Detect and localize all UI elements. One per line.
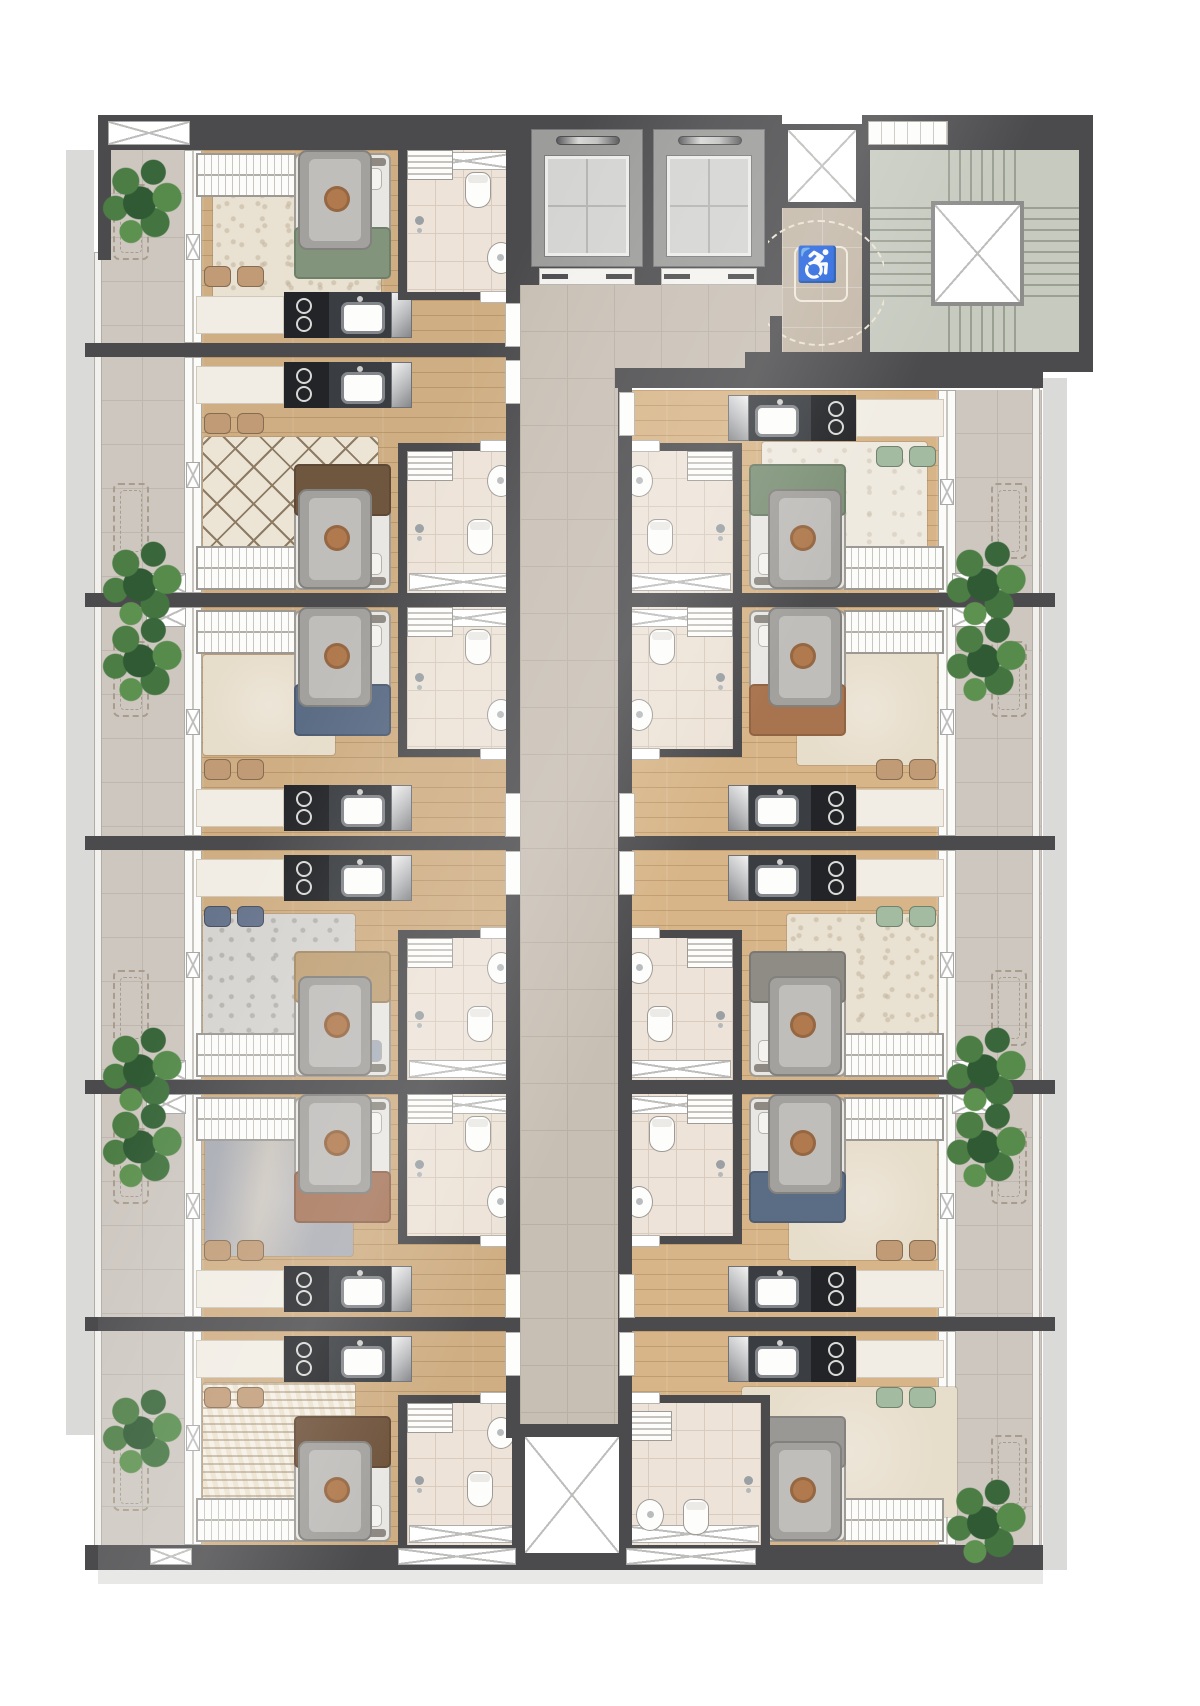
refrigerator-icon xyxy=(391,1266,412,1312)
shower-head-icon xyxy=(415,1011,424,1020)
refrigerator-icon xyxy=(728,1266,749,1312)
dining-chair xyxy=(204,1387,231,1408)
accessible-shower-bench xyxy=(687,938,733,968)
window-transom xyxy=(940,952,954,978)
toilet-icon xyxy=(649,1116,675,1152)
shadow-bottom xyxy=(98,1570,1043,1584)
floor-plan-canvas: ♿ xyxy=(0,0,1200,1706)
armchair xyxy=(298,150,372,250)
armchair xyxy=(768,607,842,707)
kitchen-sink-icon xyxy=(749,785,811,831)
cooktop-icon xyxy=(284,855,329,901)
elevator-1 xyxy=(531,129,643,267)
wardrobe xyxy=(196,1033,296,1077)
shower-head-icon xyxy=(415,216,424,225)
toilet-icon xyxy=(649,629,675,665)
dining-counter xyxy=(196,296,284,334)
dining-chair xyxy=(909,1240,936,1261)
dining-counter xyxy=(856,1340,944,1378)
window-transom xyxy=(940,709,954,735)
armchair xyxy=(298,976,372,1076)
armchair xyxy=(298,489,372,589)
kitchenette xyxy=(196,853,412,903)
dining-chair xyxy=(909,1387,936,1408)
cooktop-icon xyxy=(284,362,329,408)
refrigerator-icon xyxy=(391,1336,412,1382)
dining-counter xyxy=(856,399,944,437)
dining-chair xyxy=(204,759,231,780)
accessible-shower-bench xyxy=(687,1094,733,1124)
dining-chair xyxy=(876,759,903,780)
dining-chair xyxy=(237,759,264,780)
unit-entry-door xyxy=(505,360,521,404)
toilet-icon xyxy=(647,1006,673,1042)
window-transom xyxy=(186,709,200,735)
toilet-icon xyxy=(467,1006,493,1042)
dining-chair xyxy=(909,906,936,927)
accessible-shower-bench xyxy=(407,451,453,481)
shower-head-icon xyxy=(415,524,424,533)
dining-chair xyxy=(204,1240,231,1261)
window-transom xyxy=(186,952,200,978)
shower-glass xyxy=(409,1060,518,1078)
dining-chair xyxy=(237,413,264,434)
bathroom-door xyxy=(630,927,660,939)
potted-plant xyxy=(100,1386,186,1476)
kitchenette xyxy=(728,1334,944,1384)
wardrobe xyxy=(844,546,944,590)
shower-head-icon xyxy=(415,673,424,682)
armchair xyxy=(768,976,842,1076)
bathroom xyxy=(398,607,520,757)
balcony-rail-right xyxy=(1032,388,1040,1548)
bathroom xyxy=(398,1395,520,1545)
kitchenette xyxy=(196,1264,412,1314)
elevator-cab-icon xyxy=(667,156,751,256)
potted-plant xyxy=(100,156,186,246)
corridor-wall-right xyxy=(618,385,632,1425)
kitchenette xyxy=(728,1264,944,1314)
toilet-icon xyxy=(465,172,491,208)
cooktop-icon xyxy=(811,1266,856,1312)
potted-plant xyxy=(944,614,1030,704)
wardrobe xyxy=(844,1498,944,1542)
dining-counter xyxy=(856,859,944,897)
unit-entry-door xyxy=(505,1332,521,1376)
elevator-lintel xyxy=(678,136,742,145)
bottom-wall-window xyxy=(626,1548,756,1565)
toilet-icon xyxy=(647,519,673,555)
cooktop-icon xyxy=(811,855,856,901)
kitchen-sink-icon xyxy=(329,785,391,831)
kitchenette xyxy=(196,1334,412,1384)
wardrobe xyxy=(196,1498,296,1542)
shower-glass xyxy=(409,1525,518,1543)
accessible-shower-bench xyxy=(407,938,453,968)
dining-counter xyxy=(196,859,284,897)
central-corridor-floor xyxy=(520,285,618,1425)
cooktop-icon xyxy=(284,785,329,831)
cooktop-icon xyxy=(284,292,329,338)
dining-chair xyxy=(204,413,231,434)
bathroom-door xyxy=(630,1235,660,1247)
elevator-lintel xyxy=(556,136,620,145)
refrigerator-icon xyxy=(391,362,412,408)
shower-head-icon xyxy=(716,1160,725,1169)
unit-entry-door xyxy=(619,851,635,895)
cooktop-icon xyxy=(811,395,856,441)
shower-glass xyxy=(622,1060,731,1078)
cooktop-icon xyxy=(811,1336,856,1382)
unit-entry-door xyxy=(619,1274,635,1318)
shadow-right xyxy=(1043,378,1067,1570)
toilet-icon xyxy=(683,1499,709,1535)
shower-glass xyxy=(409,573,518,591)
armchair xyxy=(298,607,372,707)
kitchen-sink-icon xyxy=(749,1336,811,1382)
shower-glass xyxy=(622,573,731,591)
balcony-divider xyxy=(85,1317,205,1331)
wardrobe xyxy=(844,610,944,654)
potted-plant xyxy=(100,1100,186,1190)
wardrobe xyxy=(196,1097,296,1141)
wardrobe xyxy=(844,1033,944,1077)
unit-entry-door xyxy=(619,1332,635,1376)
stair-flight-bottom xyxy=(939,306,1024,352)
cooktop-icon xyxy=(284,1266,329,1312)
kitchen-sink-icon xyxy=(329,855,391,901)
bathroom xyxy=(398,930,520,1080)
potted-plant xyxy=(944,1476,1030,1566)
bottom-wall-window xyxy=(398,1548,516,1565)
dining-chair xyxy=(237,1240,264,1261)
shower-head-icon xyxy=(716,524,725,533)
window-transom xyxy=(186,234,200,260)
bathroom xyxy=(398,150,520,300)
dining-counter xyxy=(856,1270,944,1308)
bathroom xyxy=(398,1094,520,1244)
cooktop-icon xyxy=(284,1336,329,1382)
dining-chair xyxy=(876,906,903,927)
unit-entry-door xyxy=(619,392,635,436)
kitchen-sink-icon xyxy=(329,362,391,408)
shower-head-icon xyxy=(415,1160,424,1169)
armchair xyxy=(298,1441,372,1541)
refrigerator-icon xyxy=(391,855,412,901)
stair-window xyxy=(868,121,948,145)
bathroom xyxy=(398,443,520,593)
kitchenette xyxy=(728,783,944,833)
accessible-shower-bench xyxy=(687,607,733,637)
kitchenette xyxy=(728,393,944,443)
elevator-bank xyxy=(517,115,782,285)
kitchenette xyxy=(196,360,412,410)
bathroom xyxy=(620,930,742,1080)
dining-chair xyxy=(909,446,936,467)
kitchen-sink-icon xyxy=(329,1266,391,1312)
dining-chair xyxy=(876,446,903,467)
top-window xyxy=(108,121,190,145)
kitchen-sink-icon xyxy=(329,1336,391,1382)
unit-entry-door xyxy=(619,793,635,837)
right-units-top-wall xyxy=(615,368,1043,388)
dining-counter xyxy=(196,366,284,404)
refrigerator-icon xyxy=(728,1336,749,1382)
accessible-area-frame: ♿ xyxy=(794,246,848,302)
unit-entry-door xyxy=(505,851,521,895)
armchair xyxy=(298,1094,372,1194)
bathroom-door xyxy=(630,440,660,452)
stairwell xyxy=(862,115,1093,372)
refrigerator-icon xyxy=(728,395,749,441)
dining-chair xyxy=(237,266,264,287)
bathroom xyxy=(620,1395,770,1545)
accessible-shower-bench xyxy=(407,1094,453,1124)
bathroom xyxy=(620,607,742,757)
unit-entry-door xyxy=(505,793,521,837)
dining-counter xyxy=(856,789,944,827)
elevator-door-sill xyxy=(661,268,757,285)
kitchenette xyxy=(728,853,944,903)
balcony-divider xyxy=(935,1317,1055,1331)
duct-shaft-top xyxy=(782,124,862,208)
stair-flight-top xyxy=(939,150,1024,201)
toilet-icon xyxy=(467,519,493,555)
kitchenette xyxy=(196,290,412,340)
window-transom xyxy=(186,462,200,488)
window-transom xyxy=(940,479,954,505)
elevator-door-sill xyxy=(539,268,635,285)
accessible-shower-bench xyxy=(407,1403,453,1433)
service-shaft-bottom xyxy=(512,1424,632,1566)
balcony-rail-left xyxy=(94,252,102,1548)
shower-head-icon xyxy=(716,1011,725,1020)
accessible-shower-bench xyxy=(626,1411,672,1441)
dining-counter xyxy=(196,1270,284,1308)
wheelchair-icon: ♿ xyxy=(796,246,838,284)
bathroom xyxy=(620,1094,742,1244)
elevator-2 xyxy=(653,129,765,267)
potted-plant xyxy=(944,1100,1030,1190)
dining-chair xyxy=(204,906,231,927)
armchair xyxy=(768,489,842,589)
kitchen-sink-icon xyxy=(329,292,391,338)
bottom-wall-window xyxy=(150,1548,192,1565)
refrigerator-icon xyxy=(728,855,749,901)
balcony-divider xyxy=(935,836,1055,850)
stair-void xyxy=(931,201,1024,306)
toilet-icon xyxy=(465,629,491,665)
shower-head-icon xyxy=(716,673,725,682)
dining-chair xyxy=(876,1240,903,1261)
wardrobe xyxy=(844,1097,944,1141)
wardrobe xyxy=(196,153,296,197)
kitchen-sink-icon xyxy=(749,855,811,901)
shower-head-icon xyxy=(415,1476,424,1485)
stair-landing xyxy=(870,150,1079,352)
toilet-icon xyxy=(467,1471,493,1507)
toilet-icon xyxy=(465,1116,491,1152)
armchair xyxy=(768,1094,842,1194)
accessible-shower-bench xyxy=(407,607,453,637)
potted-plant xyxy=(100,614,186,704)
dining-counter xyxy=(196,1340,284,1378)
bathroom-sink-icon xyxy=(636,1499,664,1531)
dining-chair xyxy=(909,759,936,780)
bathroom-door xyxy=(630,1392,660,1404)
cooktop-icon xyxy=(811,785,856,831)
unit-entry-door xyxy=(505,303,521,347)
stair-flight-right xyxy=(1024,201,1079,306)
dining-counter xyxy=(196,789,284,827)
unit-entry-door xyxy=(505,1274,521,1318)
window-transom xyxy=(186,1193,200,1219)
elevator-cab-icon xyxy=(545,156,629,256)
shower-head-icon xyxy=(744,1476,753,1485)
wardrobe xyxy=(196,546,296,590)
balcony-divider xyxy=(85,343,205,357)
refrigerator-icon xyxy=(728,785,749,831)
bathroom xyxy=(620,443,742,593)
dining-chair xyxy=(237,1387,264,1408)
alcove-wall-upper xyxy=(770,124,782,212)
window-transom xyxy=(940,1193,954,1219)
kitchen-sink-icon xyxy=(749,395,811,441)
kitchenette xyxy=(196,783,412,833)
accessible-shower-bench xyxy=(407,150,453,180)
dining-chair xyxy=(237,906,264,927)
window-transom xyxy=(186,1425,200,1451)
dining-chair xyxy=(204,266,231,287)
bathroom-door xyxy=(630,748,660,760)
kitchen-sink-icon xyxy=(749,1266,811,1312)
balcony-divider xyxy=(85,836,205,850)
refrigerator-icon xyxy=(391,785,412,831)
dining-chair xyxy=(876,1387,903,1408)
armchair xyxy=(768,1441,842,1541)
accessible-shower-bench xyxy=(687,451,733,481)
wardrobe xyxy=(196,610,296,654)
